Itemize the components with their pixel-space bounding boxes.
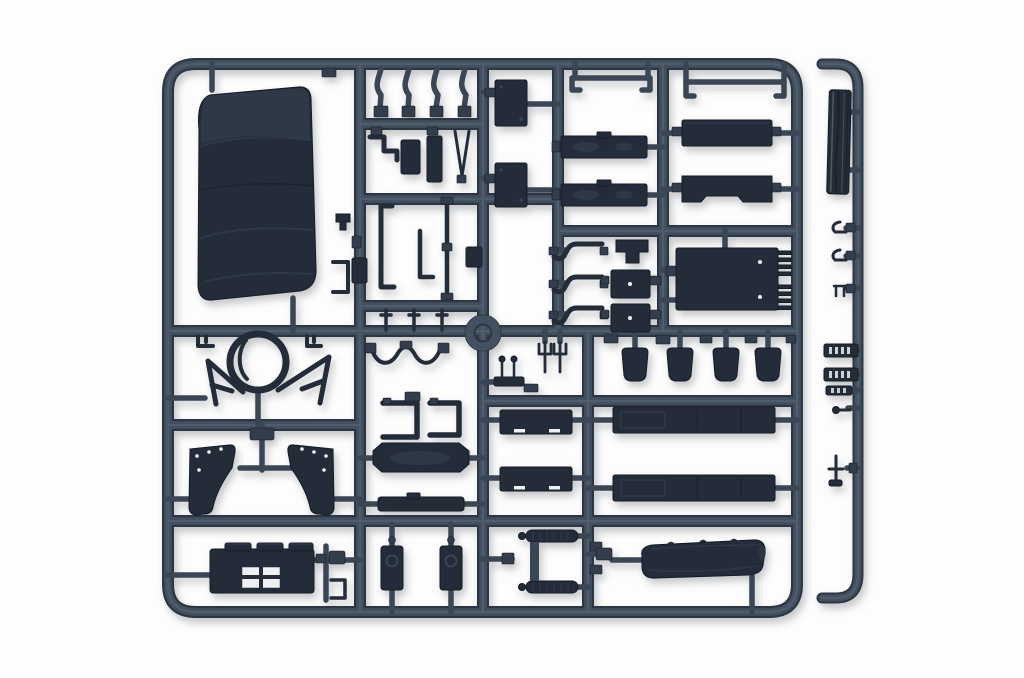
sprue-frame — [168, 64, 797, 612]
door-panel-upper — [485, 80, 527, 126]
bed-panel-upper — [672, 120, 781, 146]
side-board-lower — [552, 180, 647, 206]
stake-rail-left — [572, 78, 650, 90]
chassis-rail-lower — [613, 475, 775, 501]
steering-wheel-ring — [230, 334, 286, 390]
stake-rail-right — [686, 82, 784, 96]
mud-flap-squares — [601, 270, 661, 332]
sill-bar — [378, 493, 464, 511]
model-sprue-photo — [0, 0, 1024, 678]
bed-panel-notched — [672, 176, 781, 202]
fender-gate-pad — [250, 428, 274, 440]
window-frames — [383, 392, 459, 437]
fender-right — [288, 445, 334, 515]
trident-forks — [539, 342, 566, 372]
fender-left — [189, 445, 235, 515]
bed-floor-panel — [373, 443, 469, 472]
chassis-rail-upper — [613, 407, 775, 433]
cab-rear-window-panel — [210, 543, 314, 593]
side-board-upper — [552, 132, 647, 158]
grab-hooks — [833, 222, 855, 296]
tailgate-hinged-panel — [666, 248, 791, 310]
wiring-loom — [365, 341, 449, 363]
detail-runner-strip — [822, 64, 858, 598]
hinge-panel-lower — [500, 467, 572, 491]
photo-canvas — [0, 0, 1024, 678]
hat-bracket — [616, 240, 648, 263]
bracket-row — [370, 127, 469, 183]
canvas-tilt-cover — [198, 87, 316, 300]
mirror-stalks — [494, 356, 538, 392]
exhaust-plank — [827, 90, 852, 195]
bent-lever-arms — [374, 69, 471, 117]
linkage-rods — [352, 197, 482, 300]
hinge-panel-upper — [500, 410, 572, 434]
